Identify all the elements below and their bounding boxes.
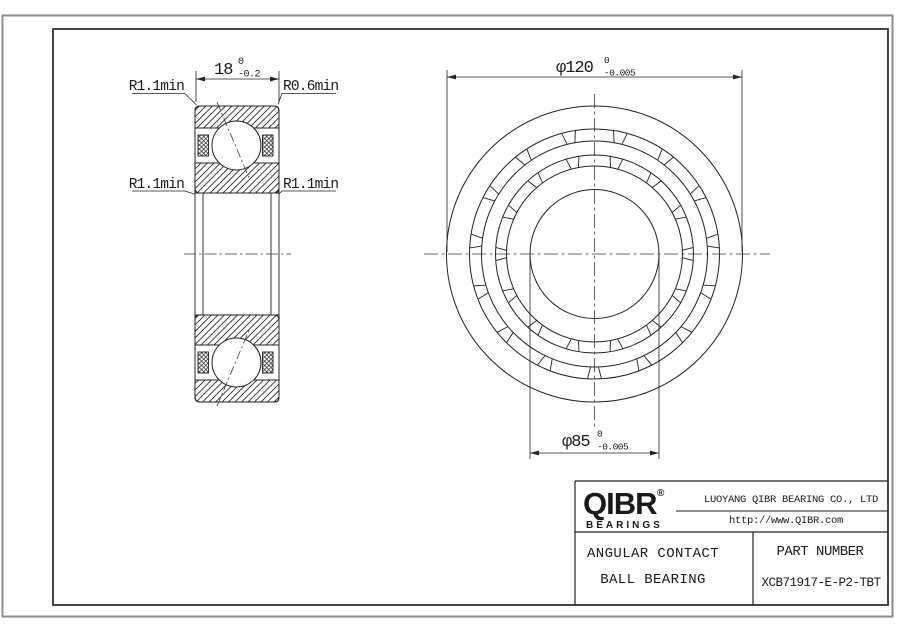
front-view: φ120 0 -0.005 φ85 0 -0.005 <box>424 55 770 459</box>
dim-arrow-left <box>447 75 456 80</box>
product-name-line1: ANGULAR CONTACT <box>587 546 719 562</box>
width-dim-value: 18 <box>214 61 233 80</box>
width-dim-tol-upper: 0 <box>238 57 244 68</box>
title-block: QIBR ® BEARINGS LUOYANG QIBR BEARING CO.… <box>575 481 888 605</box>
ball-bottom <box>212 338 261 387</box>
od-dim-tol-lower: -0.005 <box>604 68 636 79</box>
dim-arrow-left <box>196 77 205 82</box>
part-number-value: XCB71917-E-P2-TBT <box>761 576 881 590</box>
registered-trademark-icon: ® <box>657 488 665 499</box>
cage-section-bottom-left <box>198 352 209 373</box>
section-view: 18 0 -0.2 R1.1min R0.6min R1.1min R1.1mi… <box>129 57 339 406</box>
width-dimension: 18 0 -0.2 <box>196 57 279 102</box>
radius-label-mid-left: R1.1min <box>129 177 184 193</box>
dim-arrow-right <box>270 77 279 82</box>
bore-dim-tol-upper: 0 <box>597 429 603 440</box>
width-dim-tol-lower: -0.2 <box>238 70 261 81</box>
drawing-sheet: 18 0 -0.2 R1.1min R0.6min R1.1min R1.1mi… <box>0 0 900 636</box>
brand-subtitle: BEARINGS <box>586 520 663 531</box>
dim-arrow-right <box>733 75 742 80</box>
od-dim-tol-upper: 0 <box>604 55 610 66</box>
cage-section-bottom-right <box>263 352 274 373</box>
part-number-label: PART NUMBER <box>777 544 865 560</box>
bearing-drawing: 18 0 -0.2 R1.1min R0.6min R1.1min R1.1mi… <box>0 0 900 636</box>
dim-arrow-right <box>650 451 659 456</box>
company-website: http://www.QIBR.com <box>729 515 843 527</box>
company-name: LUOYANG QIBR BEARING CO., LTD <box>704 494 878 506</box>
bore-dim-tol-lower: -0.005 <box>597 442 629 453</box>
brand-text: QIBR <box>583 486 657 521</box>
qibr-logo-icon: QIBR ® BEARINGS <box>583 486 665 531</box>
radius-label-top-right: R0.6min <box>283 79 338 95</box>
radius-label-top-left: R1.1min <box>129 79 184 95</box>
radius-label-mid-right: R1.1min <box>283 177 338 193</box>
bore-dim-value: φ85 <box>562 433 590 452</box>
cage-section-top-left <box>198 135 209 156</box>
dim-arrow-left <box>530 451 539 456</box>
cage-section-top-right <box>263 135 274 156</box>
od-dim-value: φ120 <box>556 59 594 78</box>
product-name-line2: BALL BEARING <box>600 572 706 588</box>
bore-dimension: φ85 0 -0.005 <box>530 254 659 459</box>
ball-top <box>212 121 261 170</box>
